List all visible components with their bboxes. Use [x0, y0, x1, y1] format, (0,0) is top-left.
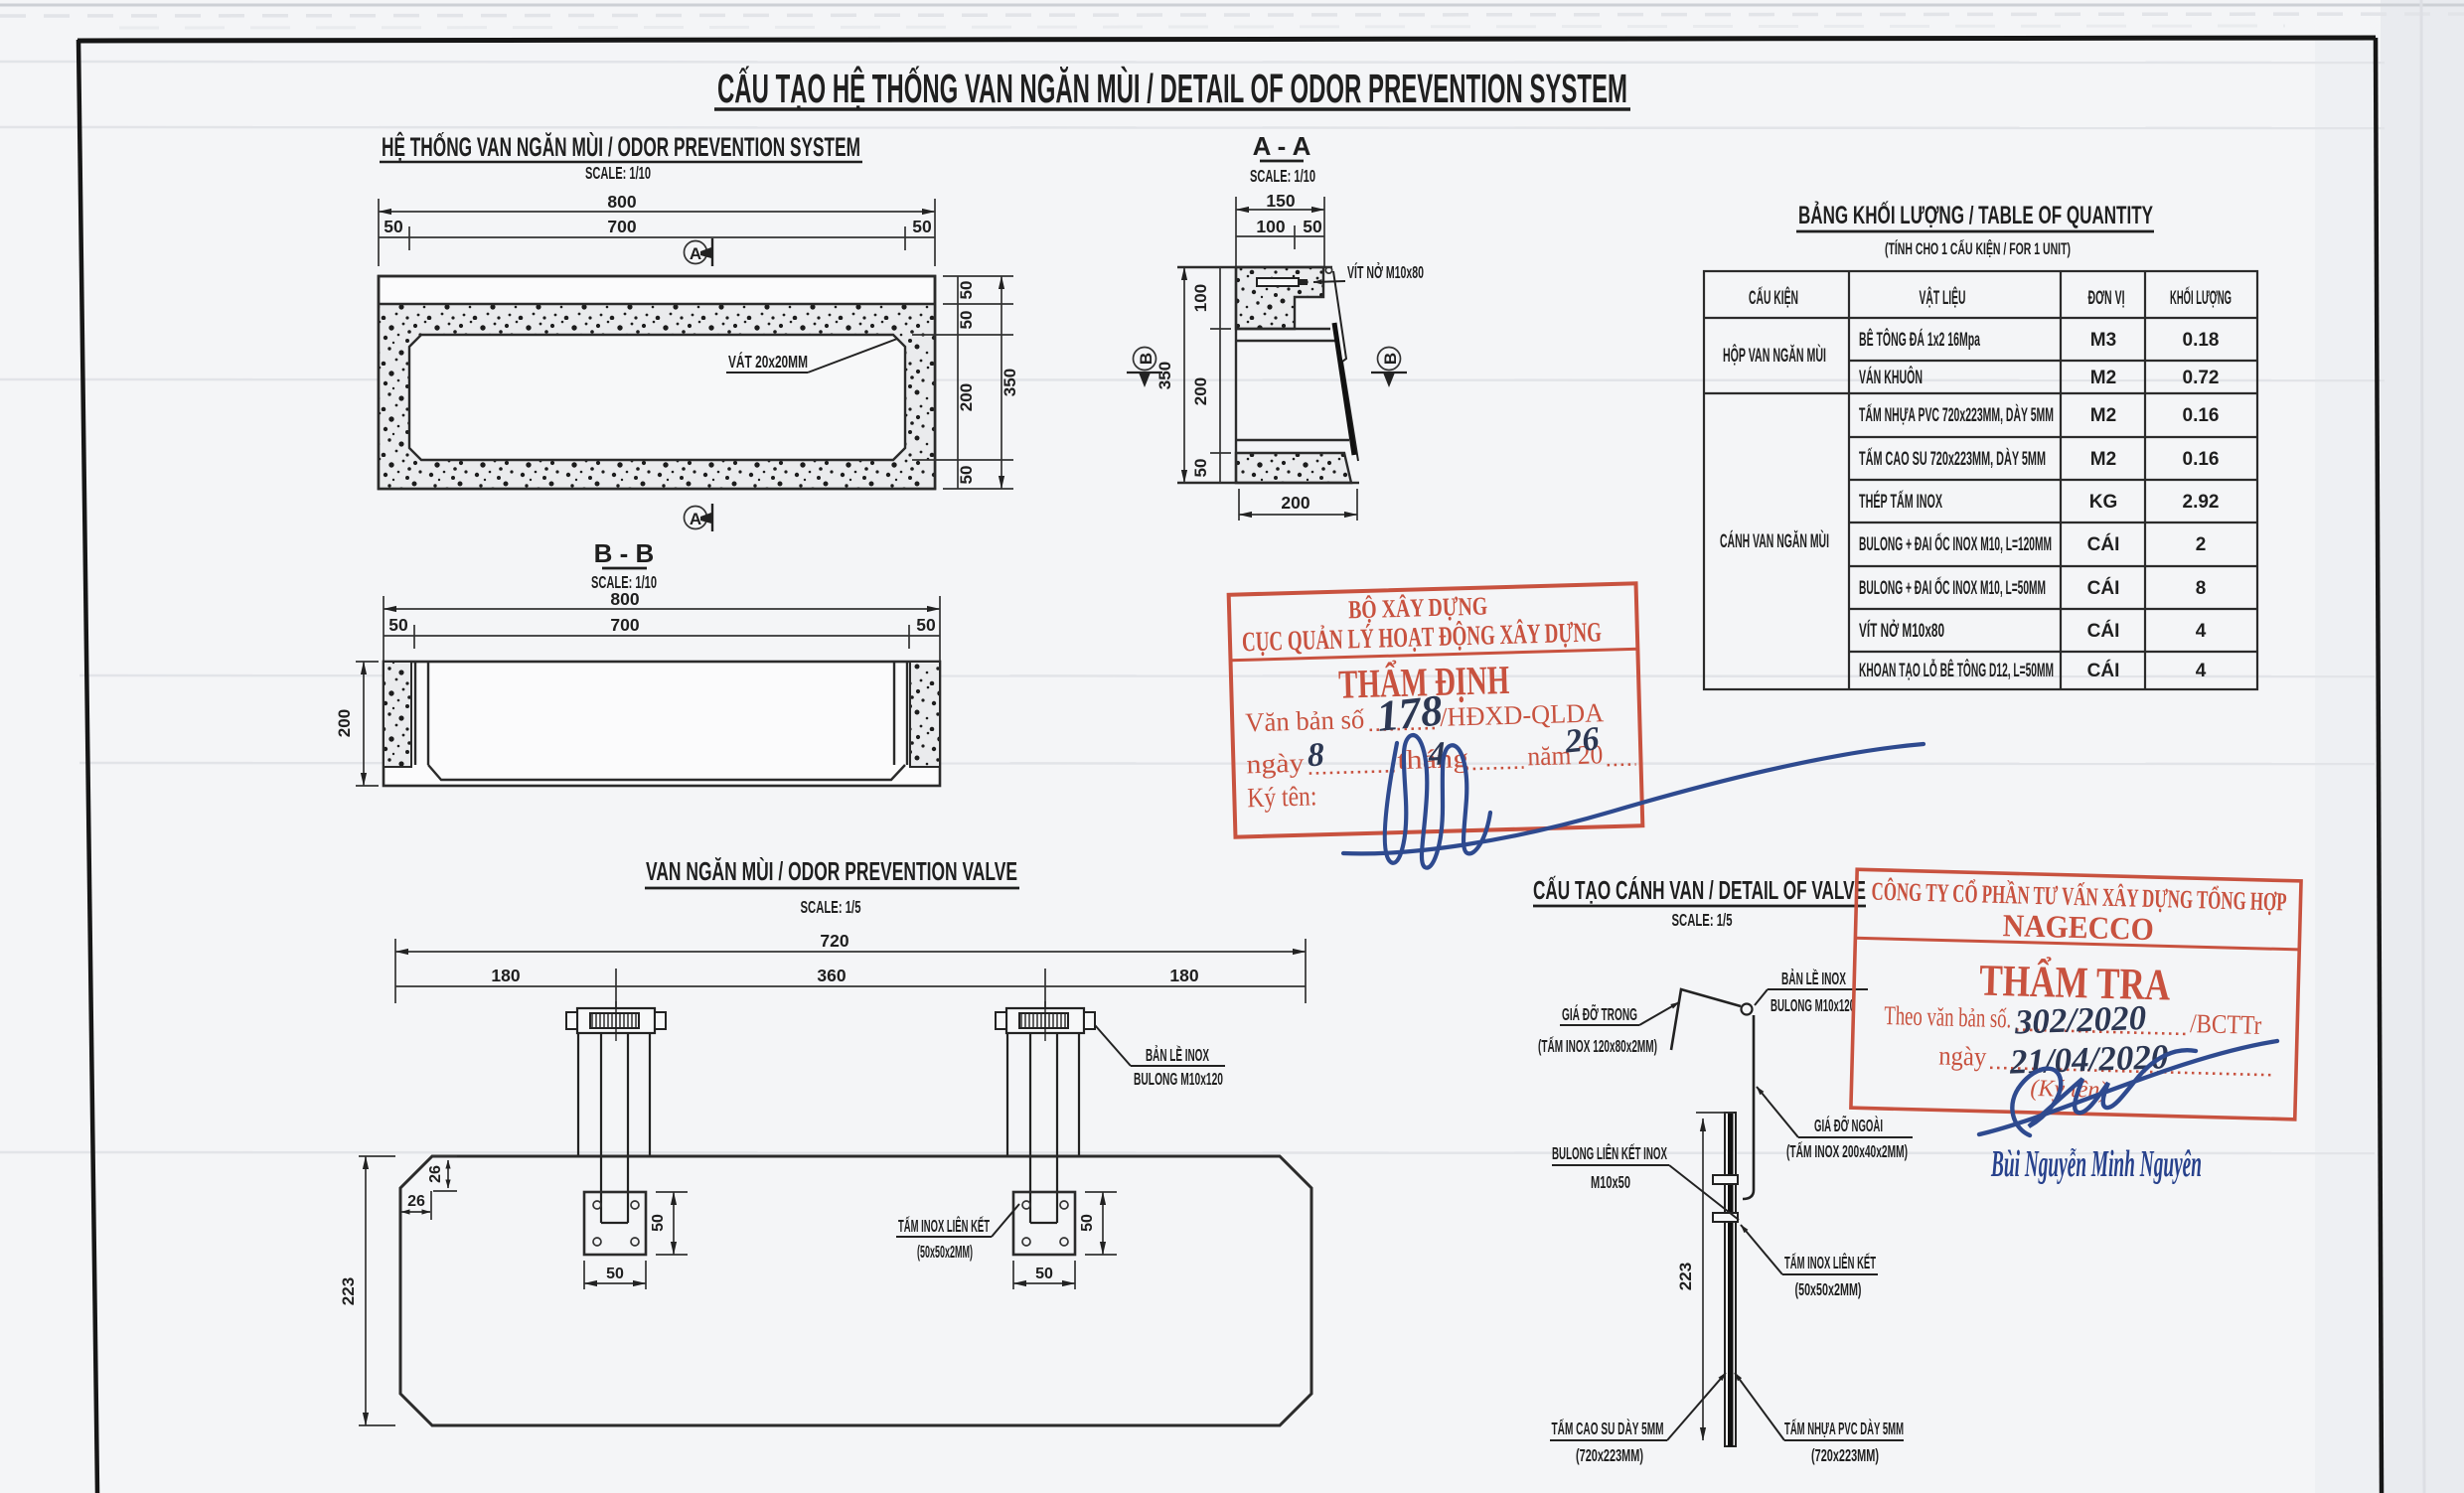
- svg-text:TẤM CAO SU DÀY 5MM: TẤM CAO SU DÀY 5MM: [1552, 1418, 1664, 1438]
- svg-text:VẬT LIỆU: VẬT LIỆU: [1920, 287, 1966, 309]
- svg-text:0.16: 0.16: [2183, 405, 2220, 426]
- svg-text:0.18: 0.18: [2183, 330, 2220, 351]
- svg-text:VÍT NỞ M10x80: VÍT NỞ M10x80: [1859, 620, 1944, 642]
- svg-text:NAGECCO: NAGECCO: [2002, 907, 2154, 947]
- svg-text:800: 800: [607, 192, 636, 212]
- svg-text:TẤM CAO SU 720x223MM, DÀY 5MM: TẤM CAO SU 720x223MM, DÀY 5MM: [1859, 448, 2046, 470]
- svg-text:GIÁ ĐỠ TRONG: GIÁ ĐỠ TRONG: [1562, 1003, 1637, 1024]
- svg-text:50: 50: [912, 217, 932, 236]
- svg-text:B - B: B - B: [594, 538, 655, 568]
- svg-text:800: 800: [610, 589, 639, 609]
- svg-text:50: 50: [606, 1266, 624, 1282]
- svg-text:(50x50x2MM): (50x50x2MM): [917, 1242, 973, 1262]
- svg-text:CÁI: CÁI: [2087, 533, 2120, 555]
- svg-text:50: 50: [1303, 217, 1322, 236]
- svg-text:HỆ THỐNG VAN NGĂN MÙI / ODOR P: HỆ THỐNG VAN NGĂN MÙI / ODOR PREVENTION …: [382, 130, 860, 162]
- svg-text:ngày: ngày: [1938, 1040, 1987, 1071]
- svg-text:VÍT NỞ M10x80: VÍT NỞ M10x80: [1347, 261, 1424, 282]
- svg-text:(TẤM INOX 200x40x2MM): (TẤM INOX 200x40x2MM): [1786, 1140, 1908, 1161]
- svg-text:50: 50: [650, 1214, 667, 1232]
- svg-text:CÁI: CÁI: [2087, 577, 2120, 599]
- svg-text:HỘP VAN NGĂN MÙI: HỘP VAN NGĂN MÙI: [1723, 345, 1826, 367]
- svg-text:150: 150: [1266, 191, 1295, 211]
- svg-text:8: 8: [1307, 736, 1325, 774]
- svg-text:SCALE: 1/5: SCALE: 1/5: [801, 897, 861, 917]
- svg-text:CẤU KIỆN: CẤU KIỆN: [1749, 287, 1798, 309]
- svg-text:8: 8: [2196, 578, 2207, 599]
- svg-text:CÁI: CÁI: [2087, 620, 2120, 642]
- svg-text:CẤU TẠO HỆ THỐNG VAN NGĂN MÙI: CẤU TẠO HỆ THỐNG VAN NGĂN MÙI / DETAIL O…: [717, 66, 1627, 111]
- svg-text:200: 200: [1191, 377, 1210, 405]
- svg-text:200: 200: [957, 383, 976, 411]
- svg-text:KHOAN TẠO LỖ BÊ TÔNG D12, L=50: KHOAN TẠO LỖ BÊ TÔNG D12, L=50MM: [1859, 660, 2054, 681]
- svg-text:223: 223: [1676, 1263, 1695, 1290]
- svg-text:(720x223MM): (720x223MM): [1811, 1445, 1879, 1465]
- svg-text:Ký tên:: Ký tên:: [1247, 781, 1317, 814]
- svg-text:A - A: A - A: [1253, 131, 1311, 161]
- svg-text:M2: M2: [2090, 449, 2116, 470]
- svg-text:BẢN LỀ INOX: BẢN LỀ INOX: [1781, 968, 1846, 988]
- svg-text:700: 700: [607, 217, 636, 236]
- svg-text:VAN NGĂN MÙI / ODOR PREVENTION: VAN NGĂN MÙI / ODOR PREVENTION VALVE: [646, 856, 1017, 886]
- svg-text:TẤM NHỰA PVC DÀY 5MM: TẤM NHỰA PVC DÀY 5MM: [1784, 1418, 1904, 1438]
- svg-text:THÉP TẤM INOX: THÉP TẤM INOX: [1859, 491, 1942, 513]
- svg-text:26: 26: [427, 1165, 444, 1183]
- svg-text:KG: KG: [2089, 492, 2118, 513]
- svg-text:KHỐI LƯỢNG: KHỐI LƯỢNG: [2170, 287, 2232, 309]
- svg-text:(50x50x2MM): (50x50x2MM): [1795, 1279, 1862, 1299]
- svg-text:360: 360: [817, 966, 846, 985]
- svg-text:CẤU TẠO CÁNH VAN / DETAIL OF V: CẤU TẠO CÁNH VAN / DETAIL OF VALVE: [1533, 875, 1866, 905]
- svg-text:26: 26: [1563, 720, 1602, 760]
- svg-text:0.72: 0.72: [2183, 368, 2220, 388]
- svg-text:BÊ TÔNG ĐÁ 1x2 16Mpa: BÊ TÔNG ĐÁ 1x2 16Mpa: [1859, 329, 1980, 351]
- svg-text:50: 50: [916, 615, 936, 635]
- svg-text:M10x50: M10x50: [1591, 1172, 1630, 1192]
- svg-text:350: 350: [1001, 369, 1019, 396]
- svg-text:BẢNG KHỐI LƯỢNG / TABLE OF QUA: BẢNG KHỐI LƯỢNG / TABLE OF QUANTITY: [1798, 200, 2153, 229]
- svg-text:200: 200: [335, 709, 354, 737]
- svg-text:CÁI: CÁI: [2087, 660, 2120, 681]
- svg-text:M3: M3: [2090, 330, 2116, 351]
- svg-text:(TÍNH CHO 1 CẤU KIỆN / FOR 1 U: (TÍNH CHO 1 CẤU KIỆN / FOR 1 UNIT): [1885, 239, 2071, 258]
- svg-text:0.16: 0.16: [2183, 449, 2220, 470]
- svg-text:50: 50: [957, 466, 976, 485]
- svg-text:BULONG + ĐAI ỐC INOX M10, L=12: BULONG + ĐAI ỐC INOX M10, L=120MM: [1859, 533, 2052, 555]
- svg-text:SCALE: 1/10: SCALE: 1/10: [1250, 166, 1315, 186]
- svg-text:50: 50: [388, 615, 408, 635]
- svg-text:100: 100: [1191, 284, 1210, 312]
- svg-text:BULONG + ĐAI ỐC INOX M10, L=50: BULONG + ĐAI ỐC INOX M10, L=50MM: [1859, 577, 2046, 599]
- svg-text:223: 223: [339, 1277, 358, 1305]
- svg-text:Theo văn bản số.: Theo văn bản số.: [1884, 1000, 2012, 1033]
- svg-text:A: A: [690, 510, 701, 528]
- svg-text:350: 350: [1155, 362, 1174, 389]
- svg-text:BỘ XÂY DỰNG: BỘ XÂY DỰNG: [1348, 592, 1488, 625]
- svg-text:178: 178: [1374, 685, 1445, 741]
- svg-text:200: 200: [1281, 493, 1309, 513]
- svg-text:ngày: ngày: [1246, 748, 1305, 780]
- svg-text:302/2020: 302/2020: [2013, 998, 2147, 1042]
- svg-text:50: 50: [384, 217, 403, 236]
- svg-text:VÁT 20x20MM: VÁT 20x20MM: [728, 351, 808, 372]
- svg-text:50: 50: [1191, 459, 1210, 478]
- svg-text:26: 26: [407, 1193, 425, 1210]
- svg-text:50: 50: [1079, 1214, 1096, 1232]
- svg-text:B: B: [1381, 353, 1400, 365]
- svg-text:50: 50: [957, 311, 976, 330]
- svg-text:A: A: [690, 244, 701, 263]
- svg-text:Văn bản số: Văn bản số: [1245, 704, 1365, 737]
- svg-text:M2: M2: [2090, 368, 2116, 388]
- svg-text:720: 720: [820, 931, 848, 951]
- svg-text:700: 700: [610, 615, 639, 635]
- svg-text:GIÁ ĐỠ NGOÀI: GIÁ ĐỠ NGOÀI: [1814, 1115, 1883, 1135]
- svg-text:50: 50: [957, 281, 976, 300]
- svg-text:ĐƠN VỊ: ĐƠN VỊ: [2088, 288, 2125, 309]
- svg-text:Bùi Nguyễn Minh Nguyên: Bùi Nguyễn Minh Nguyên: [1990, 1143, 2202, 1185]
- svg-text:BULONG M10x120: BULONG M10x120: [1134, 1069, 1223, 1089]
- svg-text:BULONG M10x120: BULONG M10x120: [1771, 995, 1855, 1015]
- svg-text:4: 4: [2196, 661, 2207, 681]
- svg-text:4: 4: [2196, 621, 2207, 642]
- svg-text:(TẤM INOX 120x80x2MM): (TẤM INOX 120x80x2MM): [1538, 1035, 1657, 1056]
- svg-text:2.92: 2.92: [2183, 492, 2220, 513]
- svg-text:50: 50: [1035, 1266, 1053, 1282]
- svg-text:TẤM INOX LIÊN KẾT: TẤM INOX LIÊN KẾT: [1784, 1252, 1876, 1272]
- svg-text:BẢN LỀ INOX: BẢN LỀ INOX: [1146, 1044, 1209, 1065]
- svg-text:M2: M2: [2090, 405, 2116, 426]
- svg-text:(720x223MM): (720x223MM): [1576, 1445, 1643, 1465]
- svg-text:180: 180: [1169, 966, 1198, 985]
- svg-text:CÁNH VAN NGĂN MÙI: CÁNH VAN NGĂN MÙI: [1720, 530, 1829, 552]
- svg-text:B: B: [1137, 353, 1155, 365]
- svg-text:TẤM NHỰA PVC 720x223MM, DÀY 5M: TẤM NHỰA PVC 720x223MM, DÀY 5MM: [1859, 404, 2054, 426]
- svg-text:100: 100: [1256, 217, 1285, 236]
- svg-text:BULONG LIÊN KẾT INOX: BULONG LIÊN KẾT INOX: [1552, 1142, 1667, 1163]
- svg-text:TẤM INOX LIÊN KẾT: TẤM INOX LIÊN KẾT: [898, 1215, 990, 1236]
- svg-text:VÁN KHUÔN: VÁN KHUÔN: [1859, 367, 1923, 388]
- svg-text:SCALE: 1/10: SCALE: 1/10: [585, 163, 651, 183]
- svg-text:180: 180: [491, 966, 520, 985]
- svg-text:/BCTTr: /BCTTr: [2190, 1008, 2262, 1040]
- svg-text:2: 2: [2196, 534, 2207, 555]
- svg-text:SCALE: 1/5: SCALE: 1/5: [1672, 910, 1733, 930]
